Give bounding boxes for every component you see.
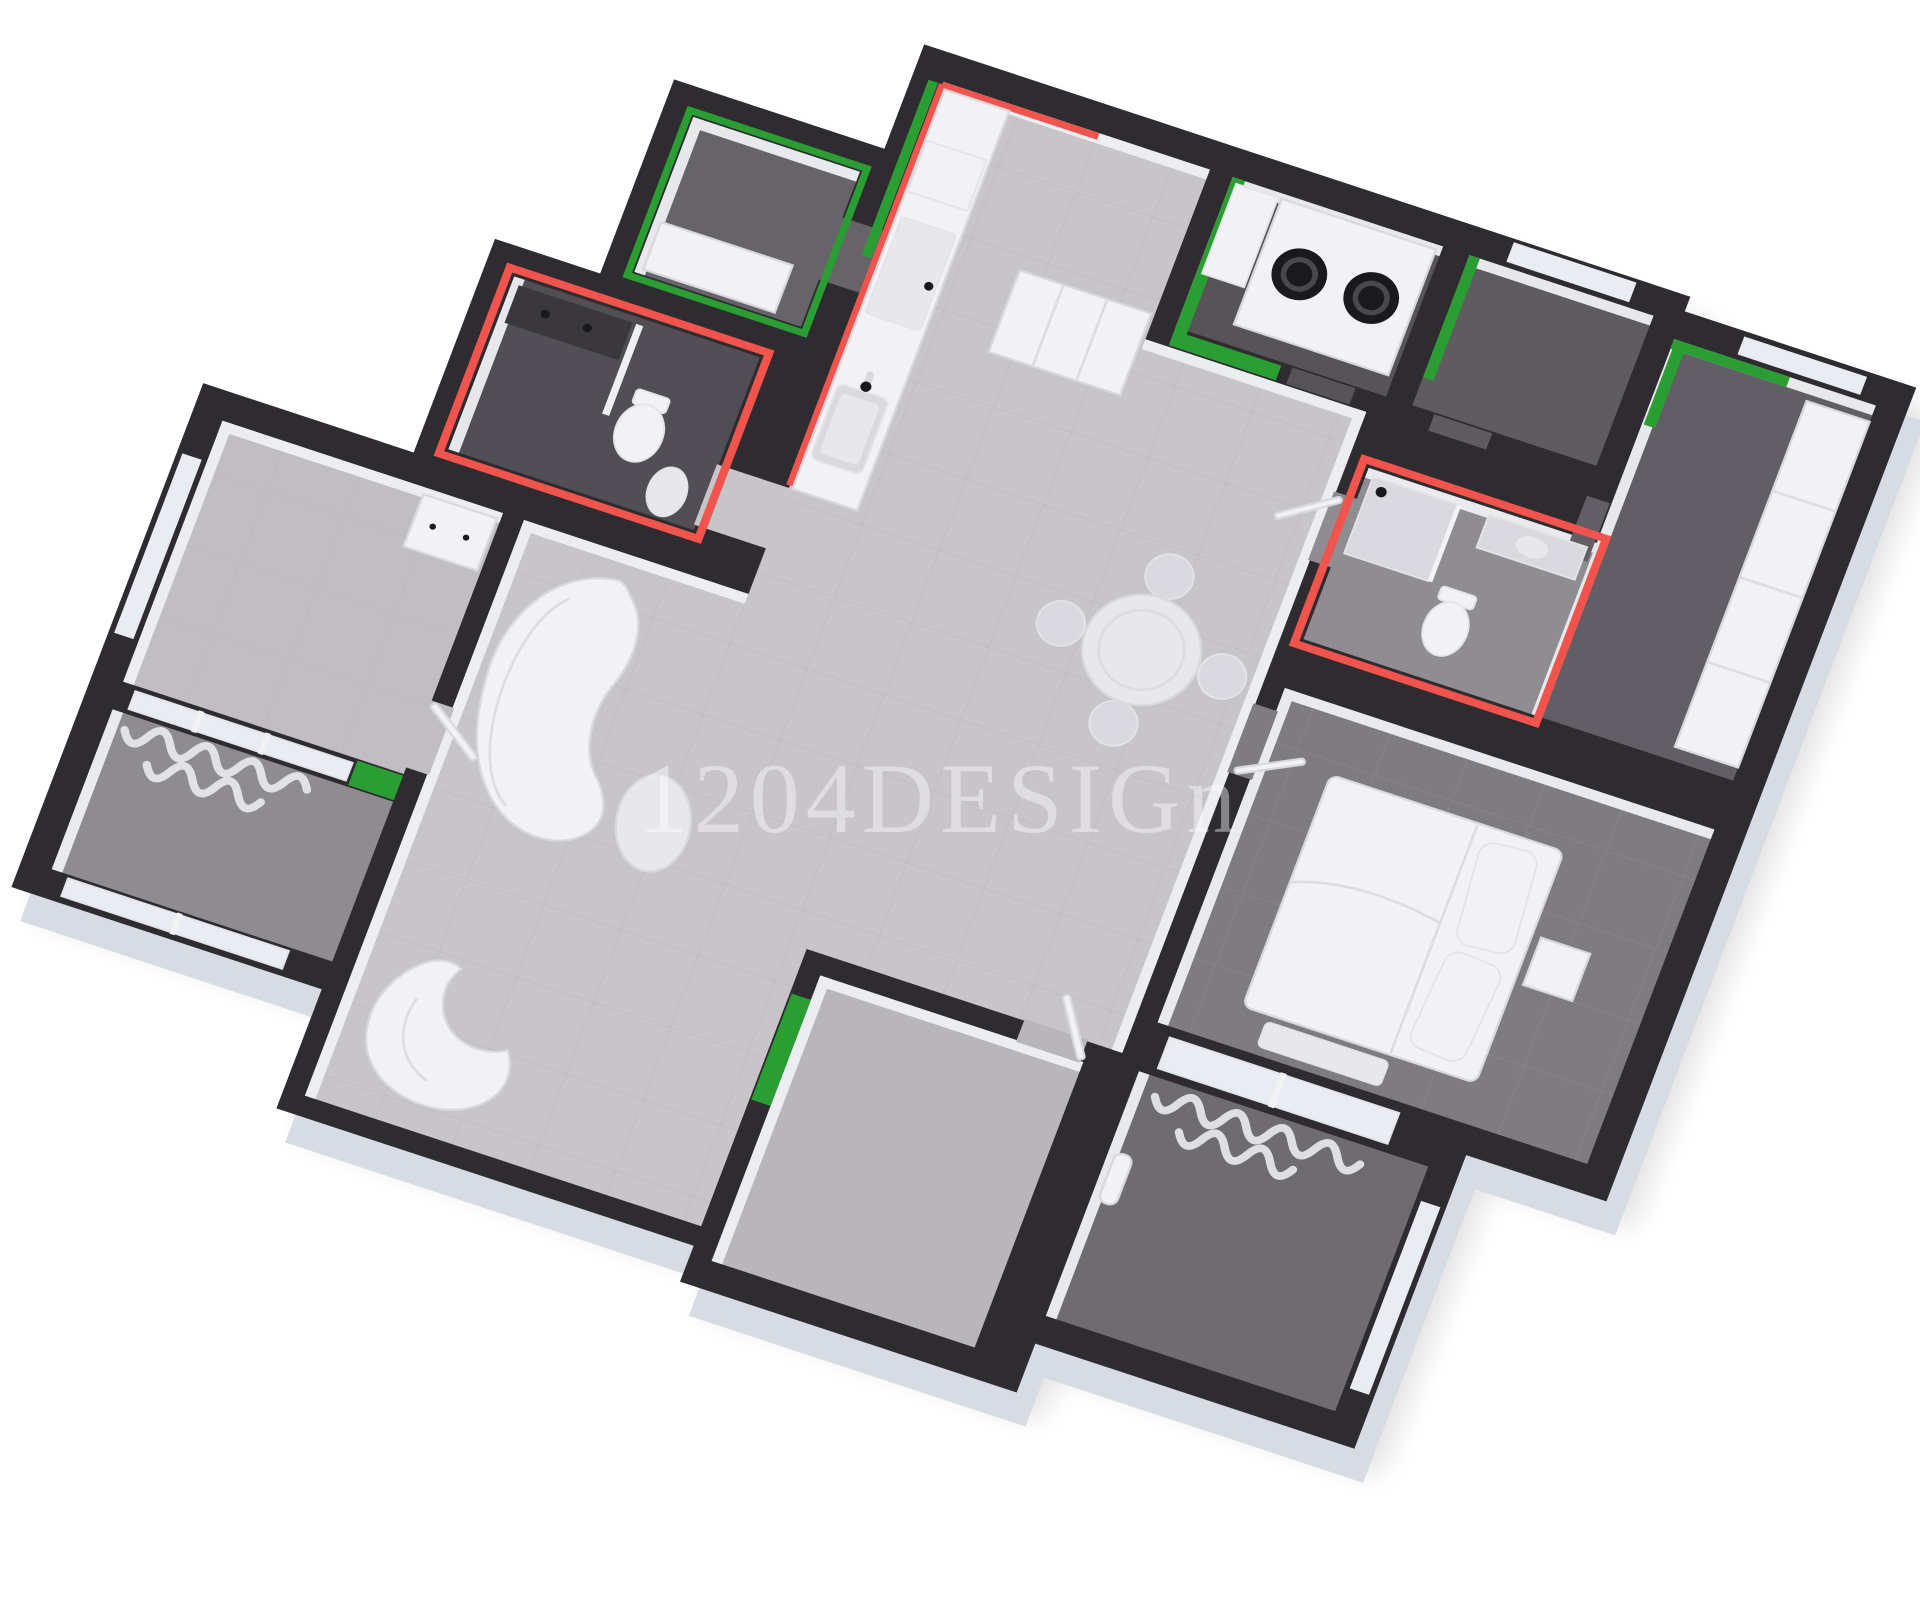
floor-plan-render: 1204DESIGn [0, 0, 1920, 1607]
watermark-text: 1204DESIGn [638, 743, 1242, 854]
floor-plan-page: 1204DESIGn [0, 0, 1920, 1607]
